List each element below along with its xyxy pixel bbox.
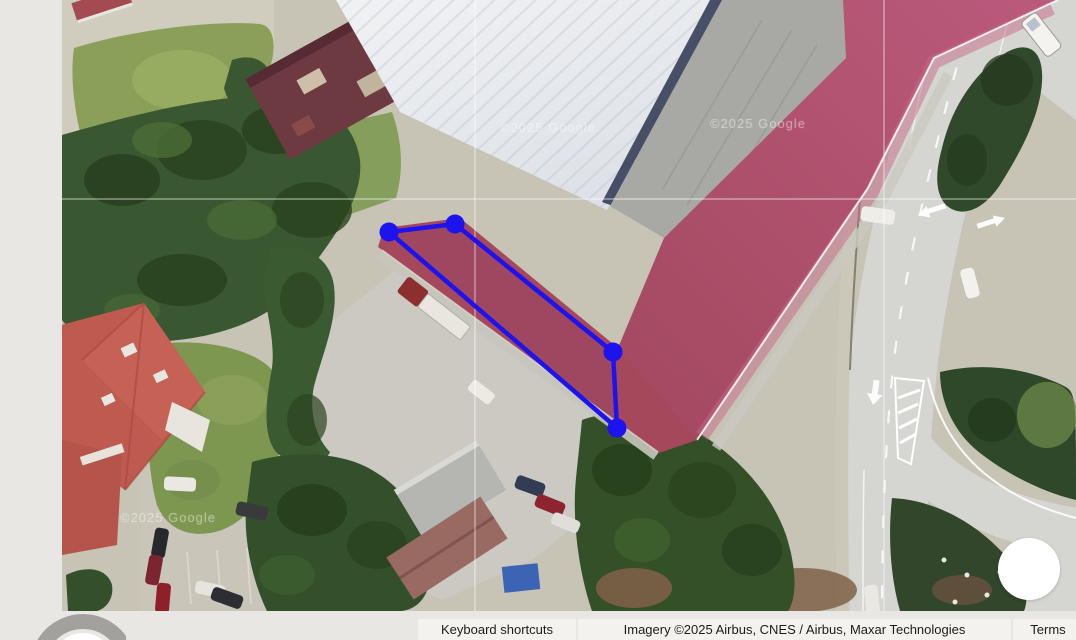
map-canvas[interactable]: ©2025 Google©2025 Google©2025 Google: [62, 0, 1076, 611]
polygon-vertex[interactable]: [446, 215, 465, 234]
drawing-overlay[interactable]: [62, 0, 1076, 611]
polygon-edge[interactable]: [389, 224, 617, 428]
keyboard-shortcuts-button[interactable]: Keyboard shortcuts: [418, 619, 576, 640]
polygon-vertex[interactable]: [604, 343, 623, 362]
terms-link[interactable]: Terms: [1013, 619, 1076, 640]
polygon-vertex[interactable]: [608, 419, 627, 438]
polygon-vertex[interactable]: [380, 223, 399, 242]
map-circle-button[interactable]: [998, 538, 1060, 600]
imagery-attribution: Imagery ©2025 Airbus, CNES / Airbus, Max…: [578, 619, 1011, 640]
page: { "attribution": { "keyboard_shortcuts":…: [0, 0, 1076, 640]
partial-logo[interactable]: [22, 609, 126, 640]
